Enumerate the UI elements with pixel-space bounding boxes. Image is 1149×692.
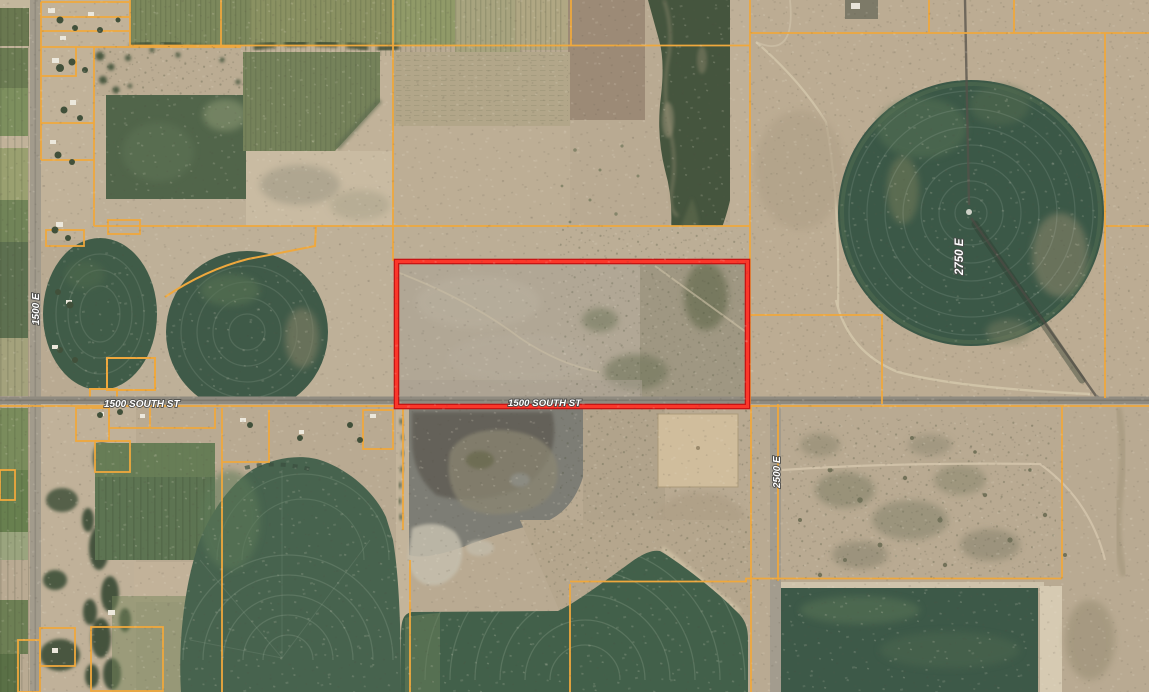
svg-text:1500 E: 1500 E — [31, 293, 42, 325]
svg-text:1500 SOUTH ST: 1500 SOUTH ST — [104, 399, 180, 410]
svg-text:2500 E: 2500 E — [772, 456, 783, 489]
svg-text:2750 E: 2750 E — [954, 238, 966, 276]
svg-text:1500 SOUTH ST: 1500 SOUTH ST — [508, 398, 582, 409]
